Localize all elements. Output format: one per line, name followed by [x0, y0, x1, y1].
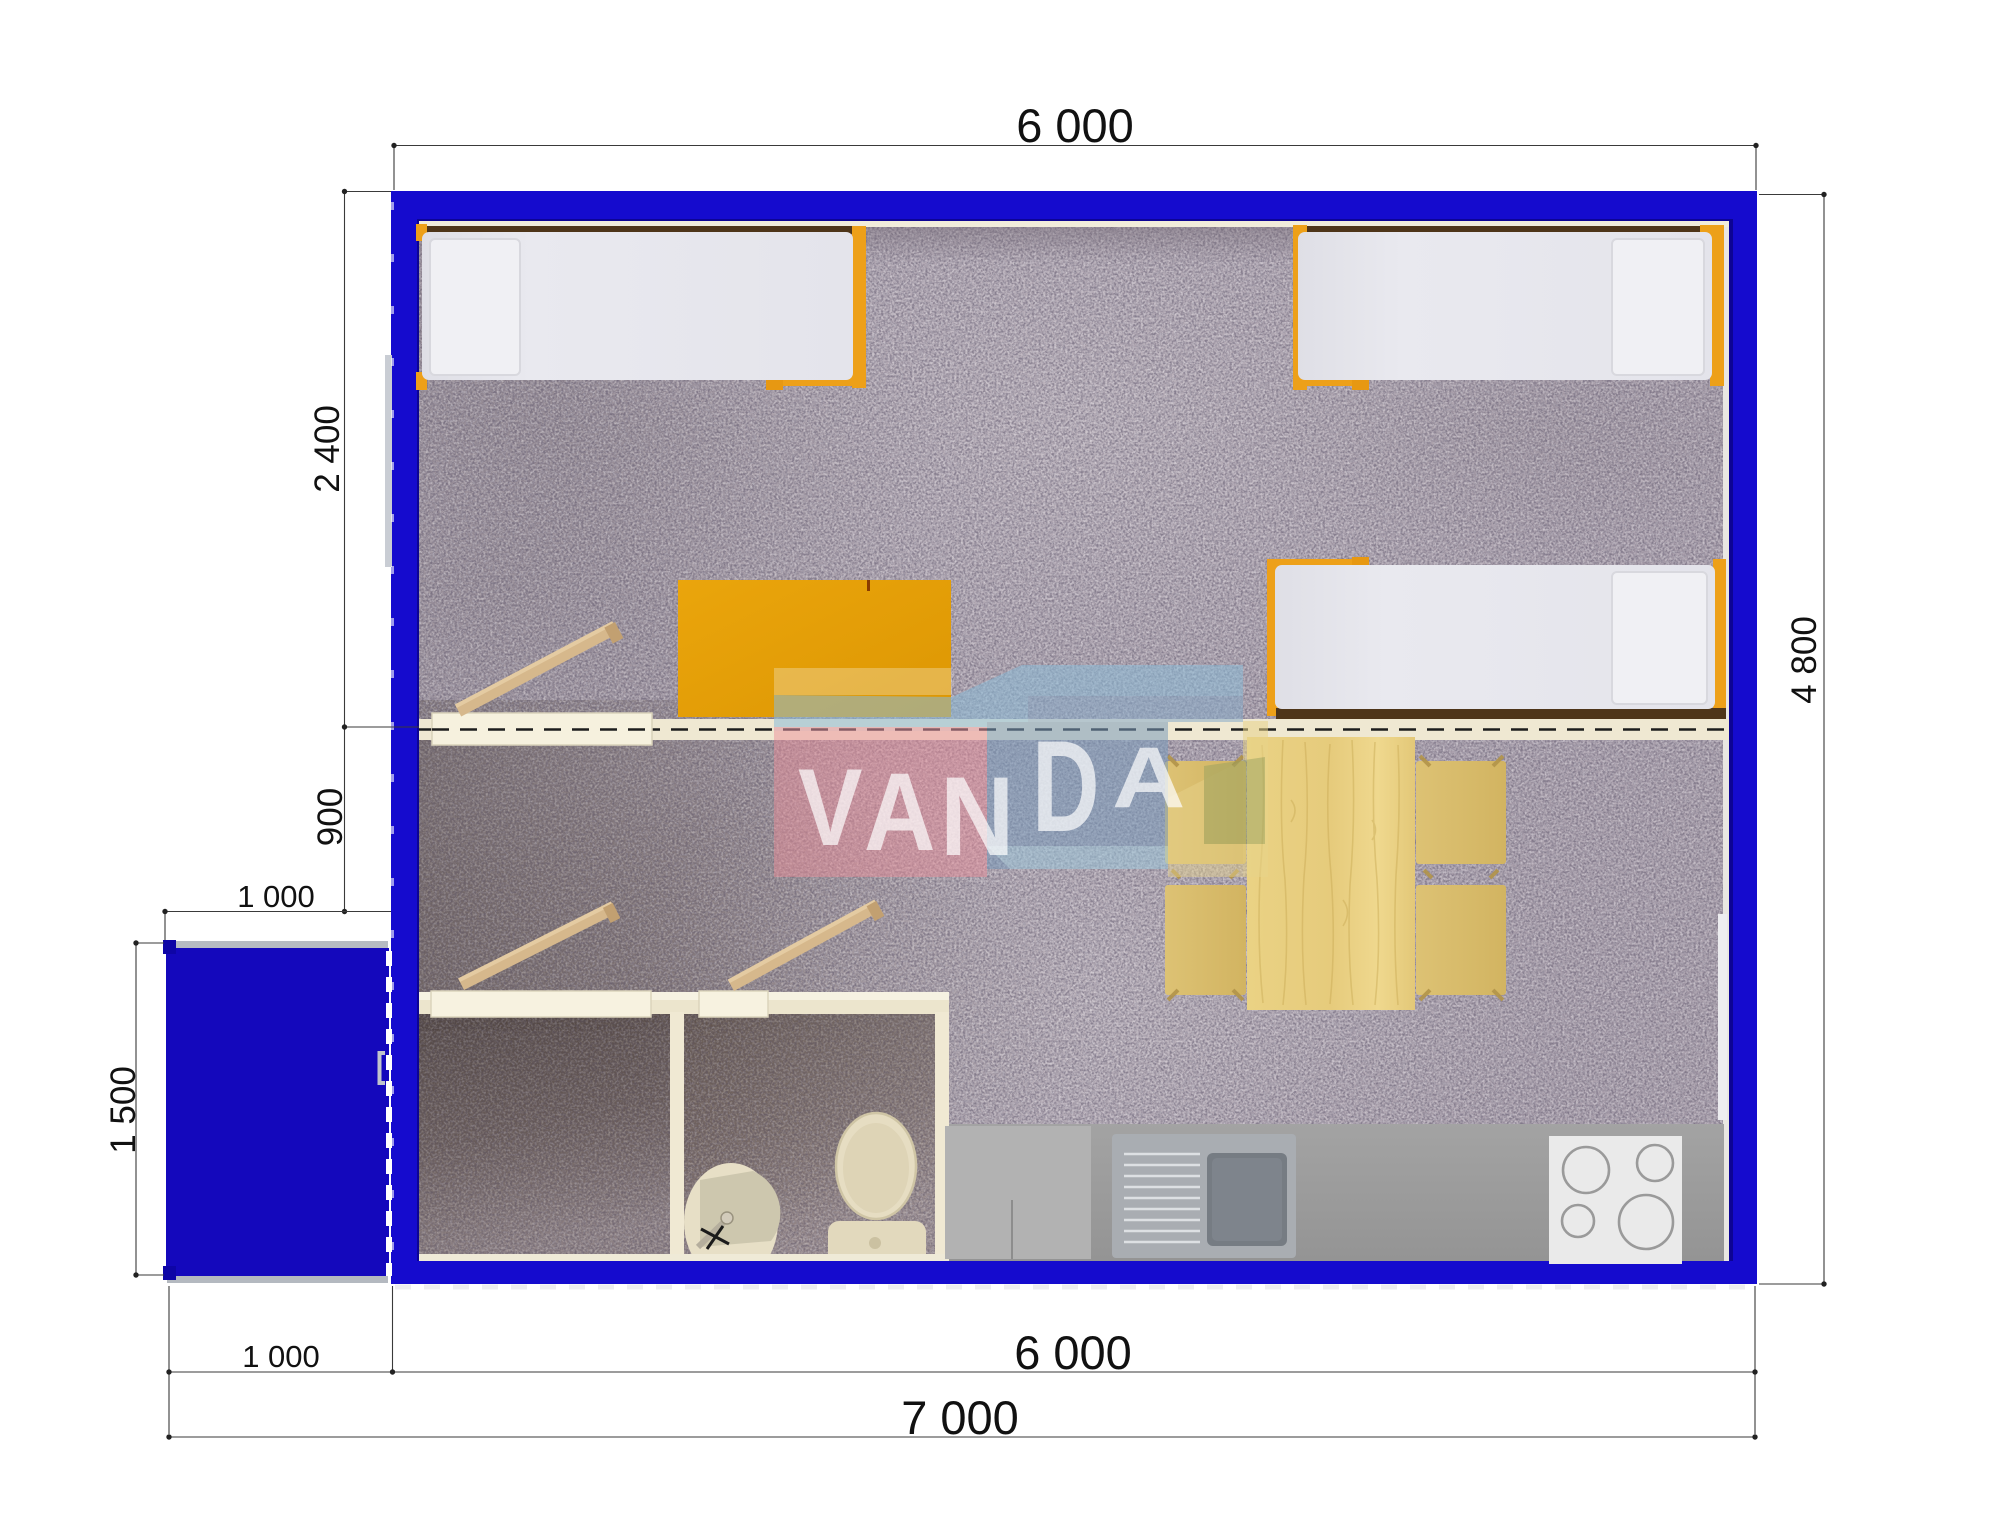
svg-text:6 000: 6 000 — [1016, 99, 1134, 152]
svg-text:6 000: 6 000 — [1014, 1326, 1132, 1379]
svg-text:N: N — [940, 754, 1014, 879]
svg-text:1 000: 1 000 — [237, 879, 315, 914]
svg-text:1 500: 1 500 — [104, 1066, 143, 1154]
svg-text:A: A — [864, 751, 935, 874]
svg-text:7 000: 7 000 — [901, 1391, 1019, 1444]
svg-text:D: D — [1032, 714, 1100, 860]
svg-text:900: 900 — [311, 788, 350, 846]
svg-text:V: V — [798, 745, 863, 868]
svg-text:2 400: 2 400 — [308, 405, 347, 493]
svg-text:A: A — [1112, 729, 1185, 825]
svg-text:4 800: 4 800 — [1785, 616, 1824, 704]
svg-text:1 000: 1 000 — [242, 1339, 320, 1374]
